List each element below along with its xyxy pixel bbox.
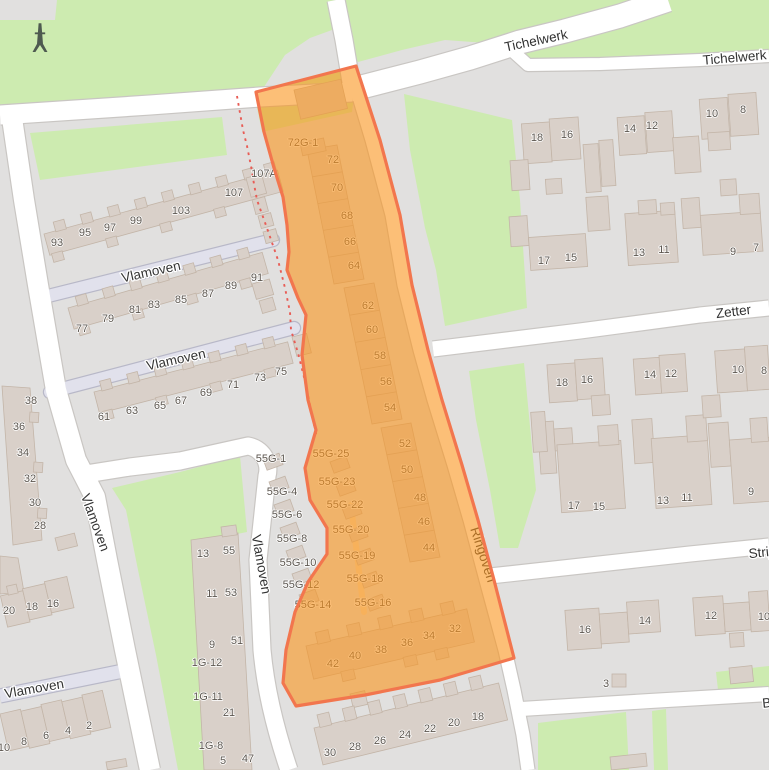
svg-text:95: 95 (79, 227, 91, 239)
svg-text:12: 12 (646, 120, 658, 132)
svg-text:9: 9 (730, 246, 736, 258)
svg-text:55G-6: 55G-6 (272, 509, 303, 521)
svg-text:15: 15 (593, 501, 605, 513)
svg-text:3: 3 (603, 678, 609, 690)
svg-text:12: 12 (665, 368, 677, 380)
svg-text:28: 28 (349, 741, 361, 753)
svg-text:14: 14 (644, 369, 656, 381)
svg-text:2: 2 (86, 720, 92, 732)
svg-text:9: 9 (209, 639, 215, 651)
svg-text:26: 26 (374, 735, 386, 747)
svg-text:61: 61 (98, 411, 110, 423)
svg-text:18: 18 (556, 377, 568, 389)
svg-text:16: 16 (561, 129, 573, 141)
svg-text:13: 13 (657, 495, 669, 507)
svg-text:55G-8: 55G-8 (277, 533, 308, 545)
svg-text:55G-10: 55G-10 (280, 557, 317, 569)
svg-text:103: 103 (172, 205, 190, 217)
svg-text:77: 77 (76, 323, 88, 335)
svg-text:1G-8: 1G-8 (199, 740, 223, 752)
svg-text:22: 22 (424, 723, 436, 735)
svg-text:63: 63 (126, 405, 138, 417)
svg-text:55G-4: 55G-4 (267, 486, 298, 498)
svg-text:20: 20 (448, 717, 460, 729)
svg-text:13: 13 (633, 247, 645, 259)
svg-text:93: 93 (51, 237, 63, 249)
svg-text:14: 14 (624, 123, 636, 135)
svg-text:67: 67 (175, 395, 187, 407)
svg-text:11: 11 (681, 492, 692, 504)
svg-text:32: 32 (24, 473, 36, 485)
svg-text:30: 30 (29, 497, 41, 509)
svg-text:79: 79 (102, 313, 114, 325)
svg-text:83: 83 (148, 299, 160, 311)
svg-text:65: 65 (154, 400, 166, 412)
svg-text:55: 55 (223, 545, 235, 557)
svg-text:16: 16 (47, 598, 59, 610)
svg-text:87: 87 (202, 288, 214, 300)
svg-text:5: 5 (220, 755, 226, 767)
svg-text:16: 16 (581, 374, 593, 386)
svg-text:10: 10 (706, 108, 718, 120)
svg-text:17: 17 (568, 500, 580, 512)
svg-text:11: 11 (658, 244, 669, 256)
svg-text:81: 81 (129, 304, 141, 316)
svg-text:10: 10 (758, 611, 769, 623)
svg-text:21: 21 (223, 707, 235, 719)
svg-text:12: 12 (705, 610, 717, 622)
svg-text:55G-1: 55G-1 (256, 453, 287, 465)
svg-text:85: 85 (175, 294, 187, 306)
svg-text:18: 18 (472, 711, 484, 723)
svg-text:97: 97 (104, 222, 116, 234)
svg-text:9: 9 (748, 486, 754, 498)
svg-text:30: 30 (324, 747, 336, 759)
svg-text:47: 47 (242, 753, 254, 765)
svg-text:4: 4 (65, 725, 71, 737)
svg-text:11: 11 (206, 588, 217, 600)
svg-text:18: 18 (531, 132, 543, 144)
svg-text:99: 99 (130, 215, 142, 227)
svg-text:7: 7 (753, 242, 759, 254)
svg-text:18: 18 (26, 601, 38, 613)
svg-text:36: 36 (13, 421, 25, 433)
svg-text:8: 8 (740, 104, 746, 116)
svg-text:107: 107 (225, 187, 243, 199)
svg-text:38: 38 (25, 395, 37, 407)
svg-text:89: 89 (225, 280, 237, 292)
svg-text:14: 14 (639, 615, 651, 627)
svg-text:10: 10 (0, 742, 10, 754)
svg-text:69: 69 (200, 387, 212, 399)
svg-text:1G-12: 1G-12 (192, 657, 223, 669)
svg-text:8: 8 (21, 736, 27, 748)
svg-text:53: 53 (225, 587, 237, 599)
svg-text:34: 34 (17, 447, 29, 459)
svg-text:20: 20 (3, 605, 15, 617)
svg-text:15: 15 (565, 252, 577, 264)
svg-text:6: 6 (43, 730, 49, 742)
svg-text:51: 51 (231, 635, 243, 647)
svg-text:1G-11: 1G-11 (193, 691, 223, 703)
svg-text:28: 28 (34, 520, 46, 532)
svg-text:71: 71 (227, 379, 239, 391)
svg-text:16: 16 (579, 624, 591, 636)
svg-text:13: 13 (197, 548, 209, 560)
svg-text:73: 73 (254, 372, 266, 384)
svg-text:24: 24 (399, 729, 411, 741)
svg-text:Bo: Bo (762, 694, 769, 711)
svg-text:10: 10 (732, 364, 744, 376)
svg-text:17: 17 (538, 255, 550, 267)
svg-text:8: 8 (761, 365, 767, 377)
svg-text:91: 91 (251, 272, 263, 284)
svg-text:75: 75 (275, 366, 287, 378)
